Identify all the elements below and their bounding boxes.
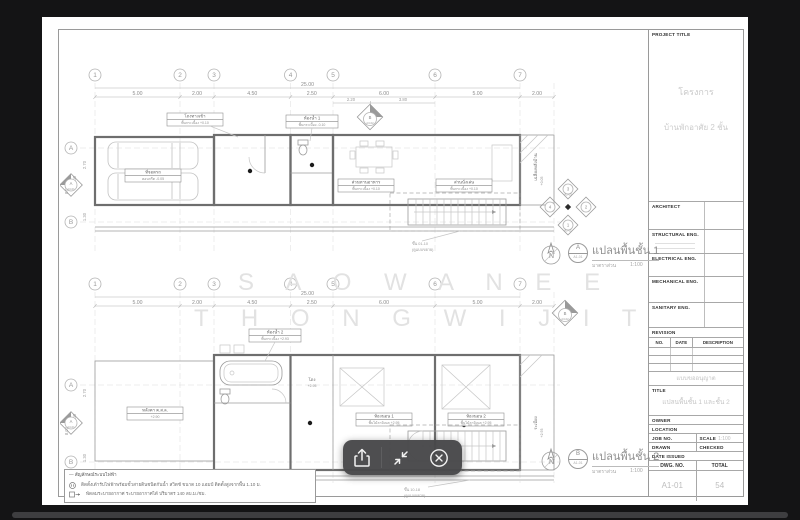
svg-text:พื้นไม้ลามิเนต +2.95: พื้นไม้ลามิเนต +2.95 xyxy=(369,420,400,425)
sub-dim: 3.80 xyxy=(399,97,408,102)
svg-text:ห้องนอน 1: ห้องนอน 1 xyxy=(374,414,394,419)
share-button[interactable] xyxy=(343,440,381,475)
dimension-label: 4.50 xyxy=(247,300,257,306)
plan2-title: แปลนพื้นชั้น 2 xyxy=(592,447,659,465)
fan-icon xyxy=(69,491,83,498)
bedroom-2: ห้องนอน 2 พื้นไม้ลามิเนต +2.95 xyxy=(442,365,504,427)
svg-text:A: A xyxy=(70,419,73,424)
electrical-label: ELECTRICAL ENG. xyxy=(649,254,743,261)
title-label: TITLE xyxy=(649,386,743,393)
callout-hall: โถงทางเข้า พื้นกระเบื้อง +0.10 xyxy=(167,113,223,126)
room-label-dining: ส่วนทานอาหาร พื้นกระเบื้อง +0.10 xyxy=(338,179,394,192)
dimension-label: 4.50 xyxy=(247,91,257,97)
plan-ref-bubble: A A1-01 xyxy=(568,243,588,263)
sub-dimensions: 2.20 3.80 xyxy=(333,97,435,105)
scale-label: มาตราส่วน xyxy=(592,468,616,476)
dimension-label: 5.00 xyxy=(472,300,482,306)
dimension-label: 5.00 xyxy=(132,300,142,306)
svg-text:หลังคา ค.ส.ล.: หลังคา ค.ส.ล. xyxy=(142,408,168,413)
permit-note: แบบขออนุญาต xyxy=(649,372,743,386)
scale-value: 1:100 xyxy=(630,468,643,476)
total-value: 54 xyxy=(697,471,744,501)
scale-value: 1:100 xyxy=(718,436,731,442)
second-floor-plan: AB123456725.005.002.004.502.506.005.002.… xyxy=(60,273,600,499)
svg-text:+0.05: +0.05 xyxy=(540,177,544,186)
living-dining: ส่วนทานอาหาร พื้นกระเบื้อง +0.10 ส่วนนั่… xyxy=(333,135,520,205)
room-label-living: ส่วนนั่งเล่น พื้นกระเบื้อง +0.10 xyxy=(436,179,492,192)
svg-text:ที่จอดรถ: ที่จอดรถ xyxy=(145,169,161,175)
sanitary-label: SANITARY ENG. xyxy=(649,303,743,310)
north-arrow-icon: N xyxy=(538,447,564,473)
close-button[interactable] xyxy=(420,440,458,475)
grid-col-label: 6 xyxy=(433,281,437,288)
dimension-label: 5.00 xyxy=(132,91,142,97)
plan2-caption: N B A1-01 แปลนพื้นชั้น 2 มาตราส่วน 1:100 xyxy=(538,447,659,476)
svg-text:พื้นกระเบื้อง -0.10: พื้นกระเบื้อง -0.10 xyxy=(299,122,326,127)
grid-row-label: A xyxy=(69,382,74,389)
scale-label: SCALE xyxy=(697,436,717,441)
dock-strip xyxy=(12,512,788,518)
stair-note: ขึ้น 10-18 xyxy=(404,486,420,492)
legend-heading: — สัญลักษณ์ระบบไฟฟ้า xyxy=(69,472,311,479)
shrink-button[interactable] xyxy=(382,440,420,475)
elevation-marker-cluster: 3 A2-03 1 A2-01 4 2 xyxy=(540,179,596,235)
shrink-icon xyxy=(392,449,410,467)
entry-hall xyxy=(214,135,291,205)
dimension-label: 6.00 xyxy=(379,300,389,306)
svg-text:A3-01: A3-01 xyxy=(67,187,75,191)
dimension-label: 2.00 xyxy=(192,91,202,97)
dimension-label: 6.00 xyxy=(379,91,389,97)
svg-text:A: A xyxy=(70,181,73,186)
svg-text:B: B xyxy=(564,311,567,316)
grid-col-label: 1 xyxy=(93,281,97,288)
svg-text:(ดูแบบขยาย): (ดูแบบขยาย) xyxy=(412,248,434,252)
screenshot-preview-window: S A O W A N E E T H O N G W I J I T AB12… xyxy=(0,0,800,520)
revision-col-no: NO. xyxy=(649,338,671,347)
marker-sheet: A3-02 xyxy=(366,121,374,125)
bathroom-2 xyxy=(214,345,291,470)
marker-ref: B xyxy=(369,115,372,120)
grid-col-label: 4 xyxy=(289,72,293,79)
grid-col-label: 7 xyxy=(518,72,522,79)
total-dimension: 25.00 xyxy=(301,291,314,297)
title-block: PROJECT TITLE โครงการ บ้านพักอาศัย 2 ชั้… xyxy=(648,29,744,497)
preview-toolbar xyxy=(343,440,462,475)
outlet-icon xyxy=(69,482,78,489)
svg-text:พื้นกระเบื้อง +2.93: พื้นกระเบื้อง +2.93 xyxy=(261,336,289,341)
svg-text:(ดูแบบขยาย): (ดูแบบขยาย) xyxy=(404,494,426,498)
svg-text:+2.90: +2.90 xyxy=(151,415,160,419)
section-marker-icon: B A3-02 xyxy=(552,300,578,326)
grid-col-label: 2 xyxy=(178,72,182,79)
room-label-bed1: ห้องนอน 1 พื้นไม้ลามิเนต +2.95 xyxy=(356,413,412,426)
dimension-label: 5.00 xyxy=(472,91,482,97)
sheet-title: แปลนพื้นชั้น 1 และชั้น 2 xyxy=(649,393,743,415)
project-title-label: PROJECT TITLE xyxy=(649,30,743,37)
dimension-label: 2.50 xyxy=(307,91,317,97)
legend-item: พัดลมระบายอากาศ ระบายอากาศได้ ปริมาตร 14… xyxy=(86,491,206,498)
room-label-porch: เฉลียงหลังบ้าน xyxy=(533,153,538,180)
north-arrow-icon: N xyxy=(538,241,564,267)
plan-ref-bubble: B A1-01 xyxy=(568,449,588,469)
sub-dim: 2.20 xyxy=(347,97,356,102)
plan1-title: แปลนพื้นชั้น 1 xyxy=(592,241,659,259)
hall-2: โถง +2.95 xyxy=(308,355,333,470)
checked-label: CHECKED xyxy=(697,445,724,450)
grid-col-label: 3 xyxy=(212,72,216,79)
callout-bath2: ห้องน้ำ 2 พื้นกระเบื้อง +2.93 xyxy=(249,329,301,342)
carport: ที่จอดรถ คอนกรีต -0.05 xyxy=(95,137,214,205)
project-name-th: โครงการ xyxy=(649,85,743,99)
plan1-caption: N A A1-01 แปลนพื้นชั้น 1 มาตราส่วน 1:100 xyxy=(538,241,659,270)
svg-text:2.70: 2.70 xyxy=(82,160,87,169)
svg-text:+2.95: +2.95 xyxy=(308,384,317,388)
location-label: LOCATION xyxy=(649,427,677,432)
room-label-carport: ที่จอดรถ คอนกรีต -0.05 xyxy=(125,169,181,182)
grid-row-label: B xyxy=(69,459,73,466)
first-floor-plan: AB123456725.005.002.004.502.506.005.002.… xyxy=(60,35,600,285)
svg-text:A2-01: A2-01 xyxy=(564,229,572,233)
close-icon xyxy=(429,448,449,468)
structural-label: STRUCTURAL ENG. xyxy=(649,230,743,237)
stair-note: ขึ้น 01-10 xyxy=(412,240,428,246)
grid-col-label: 7 xyxy=(518,281,522,288)
callout-bath: ห้องน้ำ 1 พื้นกระเบื้อง -0.10 xyxy=(286,115,338,128)
mechanical-label: MECHANICAL ENG. xyxy=(649,277,743,284)
svg-text:A3-01: A3-01 xyxy=(67,425,75,429)
scale-value: 1:100 xyxy=(630,262,643,270)
job-no-label: JOB NO. xyxy=(649,436,672,441)
svg-text:พื้นกระเบื้อง +0.10: พื้นกระเบื้อง +0.10 xyxy=(352,186,380,191)
bathroom-1 xyxy=(291,135,334,205)
svg-text:N: N xyxy=(549,253,554,260)
svg-text:ส่วนทานอาหาร: ส่วนทานอาหาร xyxy=(352,180,381,185)
car-icon xyxy=(108,142,198,169)
grid-row-label: A xyxy=(69,145,74,152)
svg-text:โถงทางเข้า: โถงทางเข้า xyxy=(184,113,205,119)
svg-text:โถง: โถง xyxy=(308,376,315,382)
staircase xyxy=(390,193,520,231)
svg-text:+2.93: +2.93 xyxy=(540,429,544,438)
svg-text:ห้องนอน 2: ห้องนอน 2 xyxy=(466,414,486,419)
grid-row-label: B xyxy=(69,219,73,226)
room-label-bed2: ห้องนอน 2 พื้นไม้ลามิเนต +2.95 xyxy=(448,413,504,426)
svg-text:พื้นกระเบื้อง +0.10: พื้นกระเบื้อง +0.10 xyxy=(450,186,478,191)
svg-text:พื้นไม้ลามิเนต +2.95: พื้นไม้ลามิเนต +2.95 xyxy=(461,420,492,425)
svg-text:1.30: 1.30 xyxy=(82,453,87,462)
legend-box: — สัญลักษณ์ระบบไฟฟ้า ติดตั้งเต้ารับไฟฟ้า… xyxy=(64,469,316,503)
revision-col-date: DATE xyxy=(671,338,693,347)
svg-text:พื้นกระเบื้อง +0.10: พื้นกระเบื้อง +0.10 xyxy=(181,120,209,125)
dimension-label: 2.00 xyxy=(192,300,202,306)
grid-col-label: 1 xyxy=(93,72,97,79)
grid-col-label: 4 xyxy=(289,281,293,288)
svg-text:2.70: 2.70 xyxy=(82,388,87,397)
project-type-th: บ้านพักอาศัย 2 ชั้น xyxy=(649,121,743,134)
rear-porch: เฉลียงหลังบ้าน +0.05 xyxy=(520,135,554,205)
revision-label: REVISION xyxy=(649,328,743,335)
drawing-sheet: S A O W A N E E T H O N G W I J I T AB12… xyxy=(42,17,748,505)
total-dimension: 25.00 xyxy=(301,82,314,88)
room-label-roof: หลังคา ค.ส.ล. +2.90 xyxy=(127,407,183,420)
svg-text:ระเบียง: ระเบียง xyxy=(533,416,538,429)
grid-col-label: 5 xyxy=(331,72,335,79)
svg-text:ส่วนนั่งเล่น: ส่วนนั่งเล่น xyxy=(454,179,474,185)
grid-col-label: 2 xyxy=(178,281,182,288)
revision-col-desc: DESCRIPTION xyxy=(693,338,743,347)
dimension-label: 2.00 xyxy=(532,91,542,97)
architect-label: ARCHITECT xyxy=(649,202,743,209)
grid-col-label: 3 xyxy=(212,281,216,288)
svg-text:ห้องน้ำ 2: ห้องน้ำ 2 xyxy=(267,329,284,335)
total-label: TOTAL xyxy=(697,461,744,470)
grid-col-label: 6 xyxy=(433,72,437,79)
owner-label: OWNER xyxy=(649,418,671,423)
scale-label: มาตราส่วน xyxy=(592,262,616,270)
dimension-label: 2.50 xyxy=(307,300,317,306)
svg-text:1.30: 1.30 xyxy=(82,212,87,221)
roof-slab: หลังคา ค.ส.ล. +2.90 xyxy=(95,361,214,461)
grid-col-label: 5 xyxy=(331,281,335,288)
svg-text:ห้องน้ำ 1: ห้องน้ำ 1 xyxy=(304,115,321,121)
svg-text:N: N xyxy=(549,459,554,466)
svg-text:A3-02: A3-02 xyxy=(561,317,569,321)
dimension-label: 2.00 xyxy=(532,300,542,306)
svg-text:A2-03: A2-03 xyxy=(564,193,572,197)
svg-text:คอนกรีต -0.05: คอนกรีต -0.05 xyxy=(142,176,164,181)
legend-item: ติดตั้งเต้ารับไฟฟ้าพร้อมขั้วสายดินชนิดกั… xyxy=(81,482,261,489)
share-icon xyxy=(353,448,371,468)
section-marker-icon: B A3-02 xyxy=(357,104,383,130)
